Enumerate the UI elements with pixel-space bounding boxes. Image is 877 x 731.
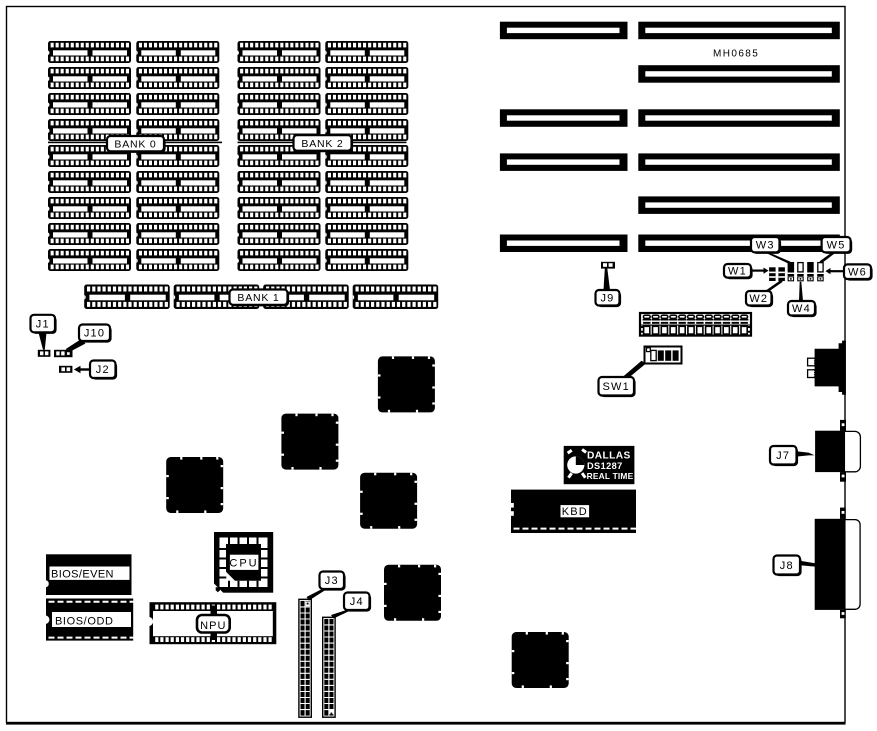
svg-text:J7: J7 <box>776 450 790 462</box>
svg-text:W4: W4 <box>792 303 811 315</box>
svg-text:KBD: KBD <box>562 506 588 518</box>
svg-text:BIOS/EVEN: BIOS/EVEN <box>51 569 114 581</box>
svg-text:J3: J3 <box>325 575 339 587</box>
svg-text:BANK 1: BANK 1 <box>237 292 279 304</box>
svg-text:DALLAS: DALLAS <box>587 450 631 461</box>
svg-text:W2: W2 <box>749 293 768 305</box>
svg-text:BANK 0: BANK 0 <box>114 139 156 151</box>
svg-text:J4: J4 <box>350 596 364 608</box>
svg-text:J1: J1 <box>36 318 50 330</box>
svg-text:J10: J10 <box>84 328 105 340</box>
svg-text:BANK 2: BANK 2 <box>301 138 343 150</box>
svg-text:W6: W6 <box>848 267 867 279</box>
svg-text:W5: W5 <box>827 240 846 252</box>
svg-text:DS1287: DS1287 <box>587 461 623 471</box>
svg-text:J2: J2 <box>96 364 110 376</box>
svg-text:BIOS/ODD: BIOS/ODD <box>55 615 114 627</box>
svg-text:REAL TIME: REAL TIME <box>587 471 634 481</box>
svg-text:SW1: SW1 <box>602 381 629 393</box>
svg-text:W3: W3 <box>756 240 775 252</box>
svg-text:CPU: CPU <box>229 557 258 569</box>
svg-text:J8: J8 <box>780 560 794 572</box>
svg-text:W1: W1 <box>728 266 747 278</box>
svg-text:MH0685: MH0685 <box>713 49 759 60</box>
svg-text:J9: J9 <box>600 293 614 305</box>
svg-text:NPU: NPU <box>200 620 226 632</box>
